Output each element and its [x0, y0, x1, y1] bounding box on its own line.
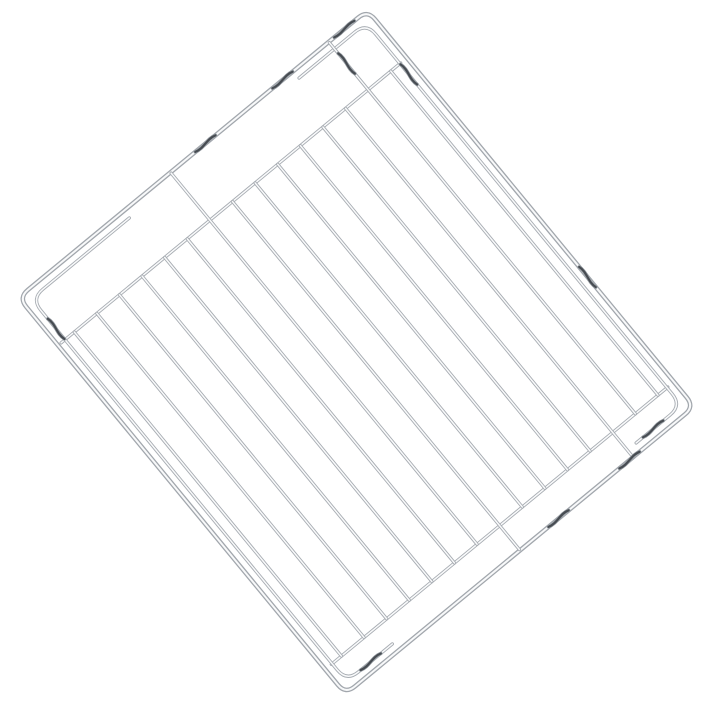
grid-wire-11: [300, 146, 567, 470]
grid-wire-6: [187, 239, 454, 563]
front-edge-stop-bend-1: [548, 510, 569, 528]
oven-rack: [18, 9, 695, 695]
grid-wire-15: [391, 71, 658, 395]
grid-wire-1: [74, 332, 341, 656]
back-edge-stop-bend-1: [195, 135, 216, 153]
product-photo-canvas: [0, 0, 706, 720]
grid-wire-9: [255, 183, 522, 507]
right-side-runner: [299, 23, 682, 461]
back-connector-wire-bend: [338, 53, 356, 74]
oven-rack-photo: [0, 0, 706, 720]
back-edge-stop-bend-2: [272, 71, 293, 89]
grid-wire-4: [142, 276, 409, 600]
grid-wire-14: [329, 43, 635, 414]
back-support-rail: [61, 63, 401, 343]
grid-wire-5: [165, 257, 432, 581]
grid-wire-2: [97, 313, 364, 637]
grid-wire-12: [323, 127, 590, 451]
grid-wire-10: [278, 164, 545, 488]
grid-wire-7: [171, 173, 477, 544]
grid-wire-8: [233, 202, 520, 550]
